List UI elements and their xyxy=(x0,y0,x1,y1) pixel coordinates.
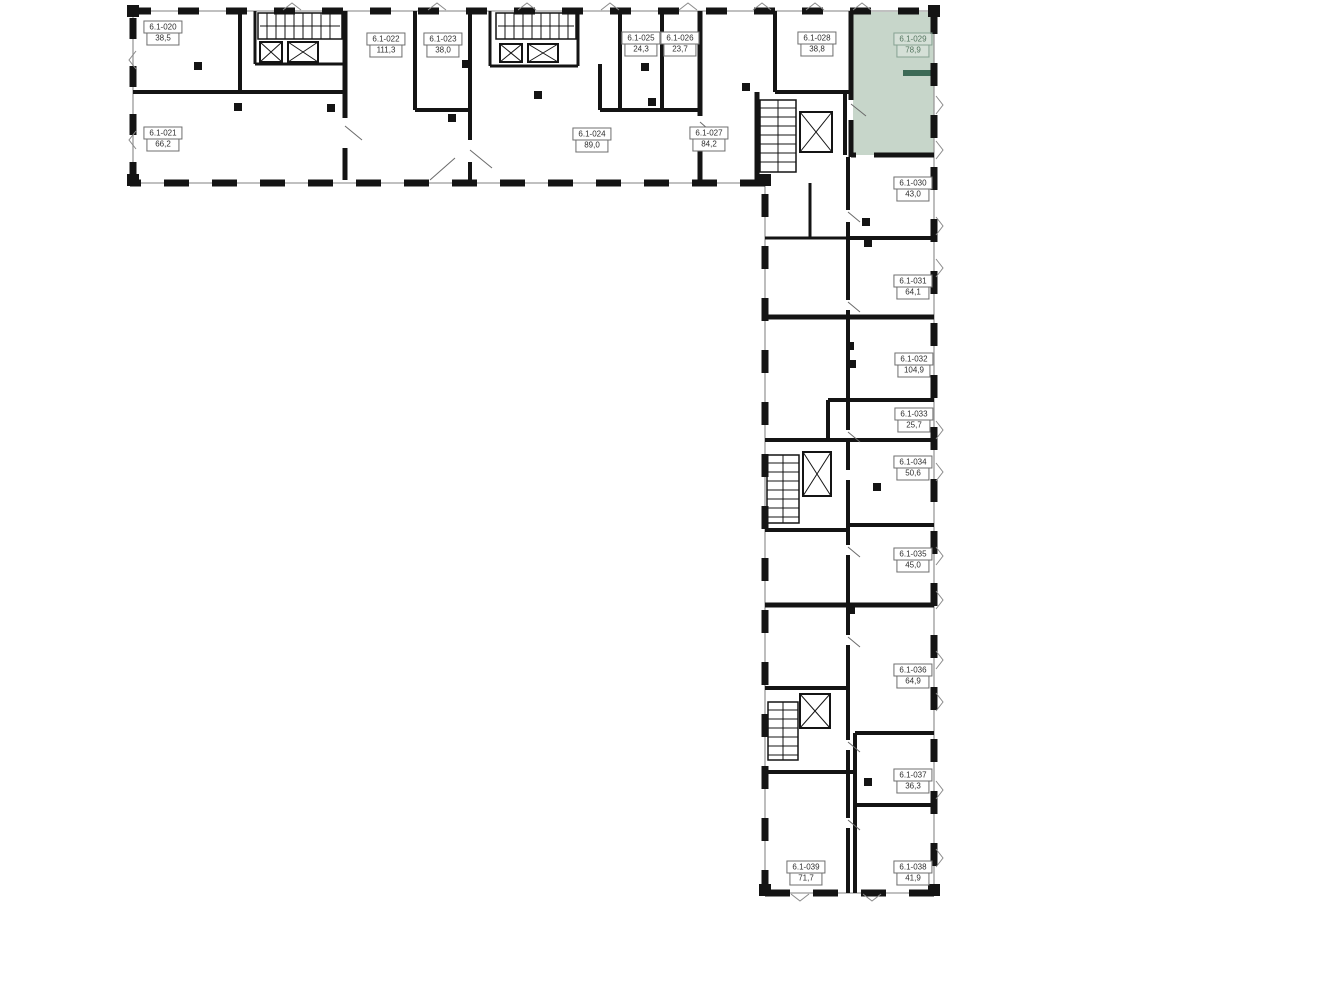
elevator-b xyxy=(800,694,830,728)
room-label-6.1-031: 6.1-03164,1 xyxy=(893,275,932,300)
room-id: 6.1-021 xyxy=(143,127,182,140)
room-label-6.1-035: 6.1-03545,0 xyxy=(893,548,932,573)
room-area: 43,0 xyxy=(896,190,929,202)
elevator-core-2 xyxy=(500,44,558,62)
room-area: 36,3 xyxy=(896,782,929,794)
room-id: 6.1-030 xyxy=(893,177,932,190)
floor-plan-svg xyxy=(0,0,1333,1000)
room-label-6.1-021: 6.1-02166,2 xyxy=(143,127,182,152)
room-area: 64,9 xyxy=(896,677,929,689)
room-id: 6.1-032 xyxy=(894,353,933,366)
room-id: 6.1-020 xyxy=(143,21,182,34)
corner-piers xyxy=(127,5,940,896)
room-id: 6.1-037 xyxy=(893,769,932,782)
room-id: 6.1-036 xyxy=(893,664,932,677)
room-label-6.1-038: 6.1-03841,9 xyxy=(893,861,932,886)
room-label-6.1-020: 6.1-02038,5 xyxy=(143,21,182,46)
room-area: 84,2 xyxy=(692,140,725,152)
room-label-6.1-023: 6.1-02338,0 xyxy=(423,33,462,58)
room-label-6.1-028: 6.1-02838,8 xyxy=(797,32,836,57)
elevator-a xyxy=(803,452,831,496)
room-label-6.1-022: 6.1-022111,3 xyxy=(366,33,405,58)
room-id: 6.1-022 xyxy=(366,33,405,46)
stair-core-junction xyxy=(760,100,796,172)
room-id: 6.1-028 xyxy=(797,32,836,45)
room-id: 6.1-033 xyxy=(894,408,933,421)
room-id: 6.1-038 xyxy=(893,861,932,874)
room-id: 6.1-025 xyxy=(621,32,660,45)
door-swings xyxy=(345,104,866,830)
room-label-6.1-029[interactable]: 6.1-02978,9 xyxy=(893,33,932,58)
room-id: 6.1-031 xyxy=(893,275,932,288)
room-area: 104,9 xyxy=(897,366,930,378)
room-id: 6.1-039 xyxy=(786,861,825,874)
room-label-6.1-027: 6.1-02784,2 xyxy=(689,127,728,152)
room-area: 38,8 xyxy=(800,45,833,57)
room-area: 41,9 xyxy=(896,874,929,886)
room-id: 6.1-035 xyxy=(893,548,932,561)
room-label-6.1-030: 6.1-03043,0 xyxy=(893,177,932,202)
room-id: 6.1-026 xyxy=(660,32,699,45)
room-label-6.1-037: 6.1-03736,3 xyxy=(893,769,932,794)
room-area: 111,3 xyxy=(369,46,402,58)
room-label-6.1-026: 6.1-02623,7 xyxy=(660,32,699,57)
stair-core-b xyxy=(768,702,798,760)
room-label-6.1-032: 6.1-032104,9 xyxy=(894,353,933,378)
room-id: 6.1-027 xyxy=(689,127,728,140)
floor-plan-canvas: 6.1-02038,56.1-02166,26.1-022111,36.1-02… xyxy=(0,0,1333,1000)
room-area: 24,3 xyxy=(624,45,657,57)
room-area: 50,6 xyxy=(896,469,929,481)
room-label-6.1-024: 6.1-02489,0 xyxy=(572,128,611,153)
elevator-core-1 xyxy=(260,42,318,62)
room-area: 66,2 xyxy=(146,140,179,152)
room-id: 6.1-023 xyxy=(423,33,462,46)
elevator-junction xyxy=(800,112,832,152)
room-id: 6.1-034 xyxy=(893,456,932,469)
stair-core-2 xyxy=(496,13,576,39)
room-id: 6.1-024 xyxy=(572,128,611,141)
room-area: 89,0 xyxy=(575,141,608,153)
room-label-6.1-036: 6.1-03664,9 xyxy=(893,664,932,689)
room-label-6.1-039: 6.1-03971,7 xyxy=(786,861,825,886)
room-label-6.1-025: 6.1-02524,3 xyxy=(621,32,660,57)
highlight-accent-bar xyxy=(903,70,935,76)
room-label-6.1-033: 6.1-03325,7 xyxy=(894,408,933,433)
room-area: 45,0 xyxy=(896,561,929,573)
room-area: 23,7 xyxy=(663,45,696,57)
room-area: 25,7 xyxy=(897,421,930,433)
stair-core-a xyxy=(767,455,799,523)
room-area: 78,9 xyxy=(896,46,929,58)
room-area: 64,1 xyxy=(896,288,929,300)
room-id: 6.1-029 xyxy=(893,33,932,46)
room-area: 71,7 xyxy=(789,874,822,886)
room-area: 38,0 xyxy=(426,46,459,58)
stair-core-1 xyxy=(258,13,342,39)
room-label-6.1-034: 6.1-03450,6 xyxy=(893,456,932,481)
room-area: 38,5 xyxy=(146,34,179,46)
